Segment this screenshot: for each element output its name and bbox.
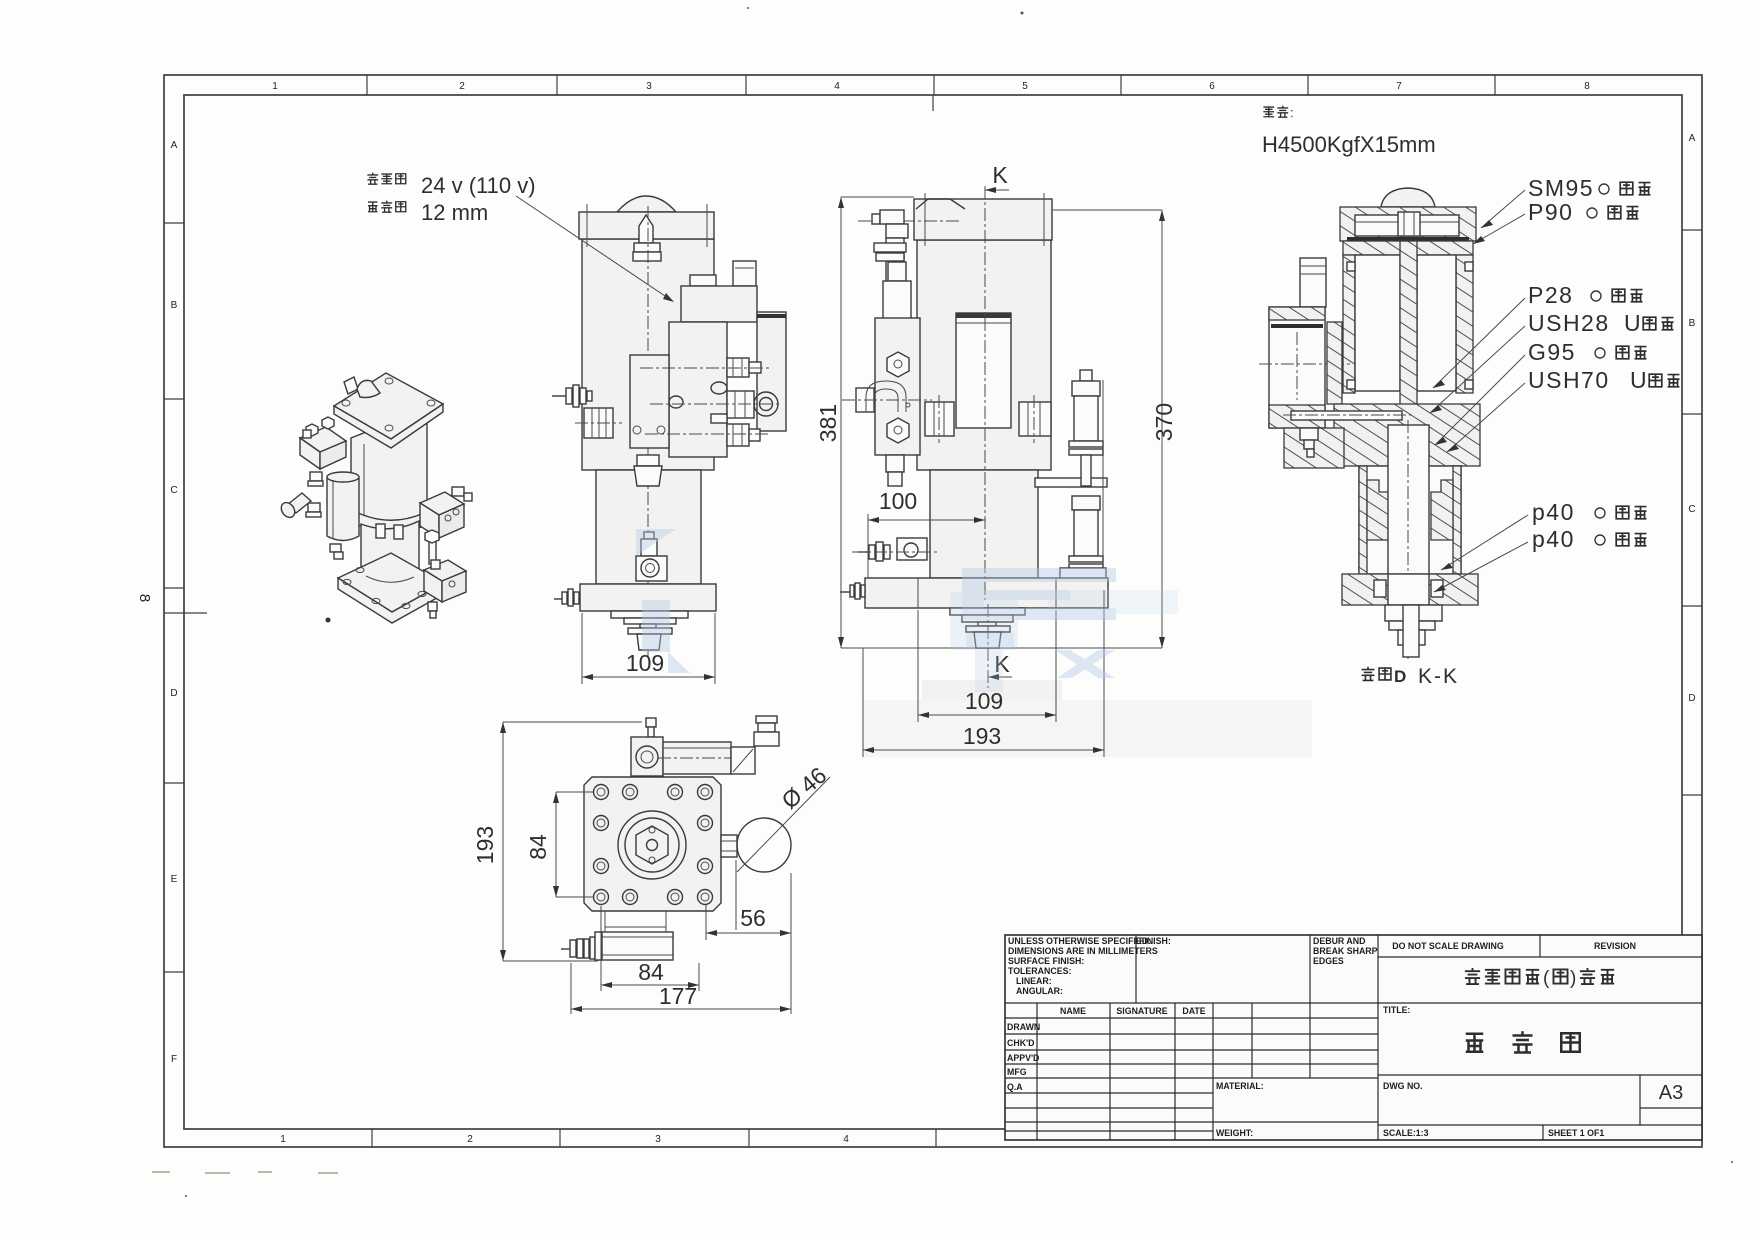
svg-text:5: 5 [1022, 81, 1028, 92]
svg-text:CHK'D: CHK'D [1007, 1038, 1035, 1048]
svg-text:SIGNATURE: SIGNATURE [1116, 1006, 1167, 1016]
svg-text:Q.A: Q.A [1007, 1082, 1023, 1092]
svg-text:USH28: USH28 [1528, 310, 1610, 336]
svg-text:84: 84 [525, 834, 551, 860]
svg-text:E: E [171, 874, 178, 885]
svg-text:BREAK SHARP: BREAK SHARP [1313, 946, 1378, 956]
svg-text:F: F [171, 1054, 177, 1065]
svg-text:DRAWN: DRAWN [1007, 1022, 1040, 1032]
svg-text::: : [1290, 105, 1294, 120]
svg-text:FINISH:: FINISH: [1139, 936, 1171, 946]
svg-text:p40: p40 [1532, 526, 1575, 552]
svg-text:NAME: NAME [1060, 1006, 1086, 1016]
svg-text:3: 3 [646, 81, 652, 92]
svg-text:4: 4 [843, 1134, 849, 1145]
svg-text:U: U [1630, 367, 1648, 393]
svg-text:p40: p40 [1532, 499, 1575, 525]
svg-text:DWG NO.: DWG NO. [1383, 1081, 1423, 1091]
svg-text:U: U [1624, 310, 1642, 336]
svg-text:P90: P90 [1528, 199, 1573, 225]
svg-text:1: 1 [280, 1134, 286, 1145]
svg-text:100: 100 [879, 488, 917, 514]
svg-text:56: 56 [740, 905, 766, 931]
svg-text:WEIGHT:: WEIGHT: [1216, 1128, 1253, 1138]
svg-text:): ) [1570, 968, 1576, 989]
svg-text:24 v (110 v): 24 v (110 v) [421, 173, 536, 198]
svg-text:APPV'D: APPV'D [1007, 1053, 1039, 1063]
svg-text:H4500KgfX15mm: H4500KgfX15mm [1262, 132, 1436, 157]
svg-text:7: 7 [1396, 81, 1402, 92]
svg-text:A: A [171, 140, 178, 151]
svg-text:84: 84 [638, 959, 664, 985]
svg-text:SM95: SM95 [1528, 175, 1594, 201]
svg-text:USH70: USH70 [1528, 367, 1610, 393]
svg-text:370: 370 [1151, 403, 1177, 441]
svg-text:A3: A3 [1659, 1082, 1683, 1104]
svg-text:LINEAR:: LINEAR: [1016, 976, 1052, 986]
svg-text:109: 109 [626, 650, 664, 676]
svg-text:REVISION: REVISION [1594, 941, 1636, 951]
svg-text:8: 8 [136, 594, 153, 602]
svg-text:DIMENSIONS ARE IN MILLIMETERS: DIMENSIONS ARE IN MILLIMETERS [1008, 946, 1158, 956]
svg-text:SURFACE FINISH:: SURFACE FINISH: [1008, 956, 1084, 966]
svg-text:193: 193 [472, 826, 498, 864]
svg-text:DO NOT SCALE DRAWING: DO NOT SCALE DRAWING [1392, 941, 1504, 951]
svg-text:UNLESS OTHERWISE SPECIFIED:: UNLESS OTHERWISE SPECIFIED: [1008, 936, 1151, 946]
svg-text:B: B [1689, 318, 1696, 329]
svg-text:D: D [1688, 693, 1695, 704]
svg-text:C: C [170, 485, 177, 496]
svg-text:MFG: MFG [1007, 1067, 1027, 1077]
svg-text:B: B [171, 300, 178, 311]
svg-text:1: 1 [272, 81, 278, 92]
svg-text:DATE: DATE [1182, 1006, 1205, 1016]
svg-text:177: 177 [659, 983, 697, 1009]
svg-text:193: 193 [963, 723, 1001, 749]
svg-text:12 mm: 12 mm [421, 200, 488, 225]
svg-text:P28: P28 [1528, 282, 1573, 308]
svg-text:SHEET 1 OF1: SHEET 1 OF1 [1548, 1128, 1604, 1138]
svg-text:TITLE:: TITLE: [1383, 1005, 1410, 1015]
svg-text:MATERIAL:: MATERIAL: [1216, 1081, 1264, 1091]
svg-text:ANGULAR:: ANGULAR: [1016, 986, 1063, 996]
svg-text:DEBUR AND: DEBUR AND [1313, 936, 1365, 946]
svg-text:A: A [1689, 133, 1696, 144]
svg-text:2: 2 [459, 81, 465, 92]
svg-text:G95: G95 [1528, 339, 1576, 365]
svg-text:4: 4 [834, 81, 840, 92]
svg-text:2: 2 [467, 1134, 473, 1145]
svg-text:TOLERANCES:: TOLERANCES: [1008, 966, 1071, 976]
svg-text:3: 3 [655, 1134, 661, 1145]
svg-text:6: 6 [1209, 81, 1215, 92]
svg-text:K-K: K-K [1418, 665, 1459, 688]
svg-text:D: D [1394, 667, 1406, 686]
svg-text:K: K [992, 162, 1008, 188]
svg-text:EDGES: EDGES [1313, 956, 1344, 966]
svg-text:381: 381 [815, 404, 841, 442]
svg-text:C: C [1688, 504, 1695, 515]
svg-text:SCALE:1:3: SCALE:1:3 [1383, 1128, 1429, 1138]
svg-text:8: 8 [1584, 81, 1590, 92]
svg-text:D: D [170, 688, 177, 699]
svg-text:(: ( [1543, 968, 1550, 989]
